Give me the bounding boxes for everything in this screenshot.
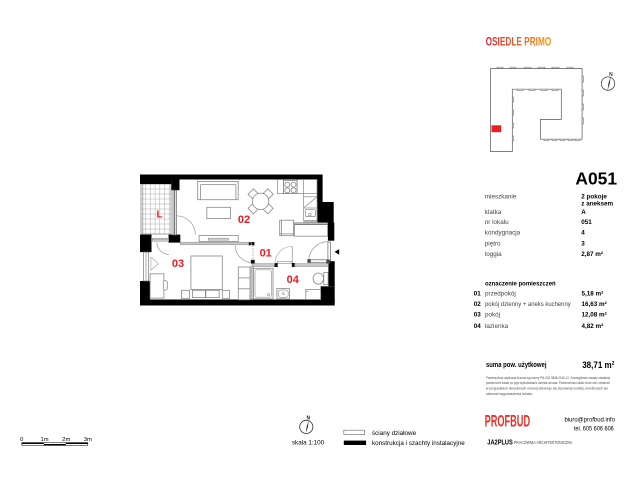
svg-text:piętro: piętro	[485, 241, 501, 248]
svg-text:02: 02	[238, 214, 250, 226]
svg-text:38,71 m²: 38,71 m²	[582, 359, 614, 370]
svg-text:4: 4	[581, 230, 585, 237]
svg-text:04: 04	[474, 323, 482, 330]
svg-text:04: 04	[287, 274, 300, 286]
svg-text:A: A	[581, 209, 586, 216]
svg-text:JA2PLUS: JA2PLUS	[487, 438, 513, 447]
svg-text:nr lokalu: nr lokalu	[485, 219, 509, 226]
svg-text:Powierzchnia użytkowa liczona: Powierzchnia użytkowa liczona wg normy P…	[486, 376, 611, 380]
svg-text:02: 02	[474, 301, 482, 308]
svg-text:pokój: pokój	[485, 312, 500, 319]
svg-text:01: 01	[260, 247, 272, 259]
svg-text:oznaczenie pomieszczeń: oznaczenie pomieszczeń	[485, 280, 556, 287]
svg-text:1m: 1m	[40, 437, 48, 443]
svg-text:OSIEDLE PRIMO: OSIEDLE PRIMO	[486, 34, 552, 48]
svg-text:skala 1:100: skala 1:100	[292, 439, 325, 446]
svg-text:PRACOWNIA ARCHITEKTONICZNA: PRACOWNIA ARCHITEKTONICZNA	[514, 440, 573, 445]
svg-text:2,87 m²: 2,87 m²	[581, 251, 603, 258]
svg-text:16,63 m²: 16,63 m²	[582, 301, 607, 308]
svg-text:N: N	[306, 416, 310, 422]
svg-text:z aneksem: z aneksem	[581, 200, 613, 207]
svg-text:klatka: klatka	[485, 209, 502, 216]
svg-text:łazienka: łazienka	[485, 323, 509, 330]
svg-text:051: 051	[581, 219, 592, 226]
svg-text:03: 03	[172, 258, 184, 270]
svg-text:pokój dzienny + aneks kuchenny: pokój dzienny + aneks kuchenny	[485, 301, 571, 308]
svg-text:0: 0	[20, 437, 23, 443]
svg-text:biuro@profbud.info: biuro@profbud.info	[565, 416, 616, 423]
svg-text:konstrukcja i szachty instalac: konstrukcja i szachty instalacyjne	[372, 440, 465, 447]
svg-text:loggia: loggia	[485, 251, 502, 258]
svg-text:w przypadkach określonych umow: w przypadkach określonych umową dokonuje…	[486, 387, 608, 391]
svg-text:stanowi wyposażenia lokalu.: stanowi wyposażenia lokalu.	[486, 392, 533, 396]
svg-text:kondygnacja: kondygnacja	[485, 230, 521, 237]
svg-text:L: L	[156, 210, 162, 221]
svg-text:A051: A051	[575, 168, 617, 188]
svg-text:ściany działowe: ściany działowe	[372, 430, 417, 437]
svg-text:3m: 3m	[84, 437, 92, 443]
svg-text:01: 01	[474, 290, 482, 297]
svg-text:3: 3	[581, 241, 585, 248]
svg-text:powierzchni lokalu po jego wyb: powierzchni lokalu po jego wybudowaniu o…	[486, 381, 610, 385]
svg-text:03: 03	[474, 312, 482, 319]
svg-text:PROFBUD: PROFBUD	[485, 413, 531, 431]
svg-text:suma pow. użytkowej: suma pow. użytkowej	[486, 360, 547, 369]
svg-text:5,18 m²: 5,18 m²	[582, 290, 604, 297]
svg-text:tel. 605 606 606: tel. 605 606 606	[574, 426, 614, 433]
svg-text:mieszkanie: mieszkanie	[485, 193, 517, 200]
svg-text:N: N	[609, 72, 613, 78]
svg-text:2m: 2m	[62, 437, 70, 443]
svg-text:przedpokój: przedpokój	[485, 290, 516, 297]
svg-text:4,82 m²: 4,82 m²	[582, 323, 604, 330]
svg-text:12,08 m²: 12,08 m²	[582, 312, 607, 319]
